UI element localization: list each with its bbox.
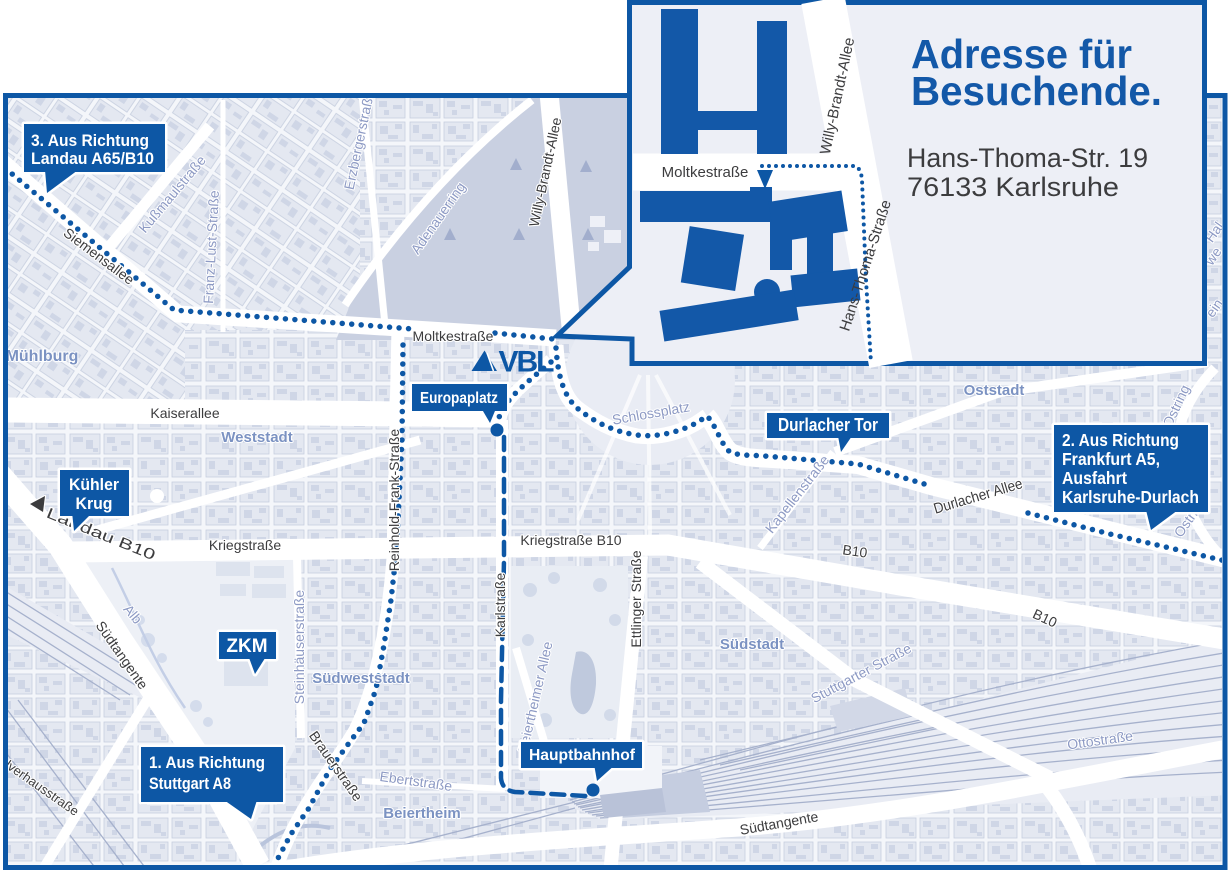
svg-text:Südweststadt: Südweststadt	[312, 670, 410, 687]
svg-text:ZKM: ZKM	[226, 636, 267, 657]
svg-text:Hauptbahnhof: Hauptbahnhof	[529, 747, 636, 764]
svg-text:Südstadt: Südstadt	[720, 636, 784, 653]
svg-text:Krug: Krug	[76, 495, 113, 513]
svg-text:Stuttgart A8: Stuttgart A8	[149, 774, 231, 793]
svg-text:VBL: VBL	[499, 346, 555, 379]
svg-text:Kühler: Kühler	[69, 476, 120, 494]
svg-text:Steinhäuserstraße: Steinhäuserstraße	[291, 590, 307, 705]
svg-text:Durlacher Tor: Durlacher Tor	[778, 415, 878, 435]
svg-text:Karlsruhe-Durlach: Karlsruhe-Durlach	[1062, 487, 1199, 507]
svg-text:Ettlinger Straße: Ettlinger Straße	[628, 550, 644, 647]
svg-text:Karlstraße: Karlstraße	[492, 573, 508, 638]
svg-text:Mühlburg: Mühlburg	[6, 348, 79, 365]
svg-text:Oststadt: Oststadt	[964, 382, 1025, 399]
svg-text:Landau A65/B10: Landau A65/B10	[31, 149, 154, 168]
svg-text:2. Aus Richtung: 2. Aus Richtung	[1062, 430, 1179, 450]
svg-text:Reinhold-Frank-Straße: Reinhold-Frank-Straße	[386, 429, 402, 572]
svg-text:Ausfahrt: Ausfahrt	[1062, 468, 1127, 488]
svg-text:Besuchende.: Besuchende.	[911, 68, 1162, 114]
svg-text:Hans-Thoma-Str. 19: Hans-Thoma-Str. 19	[907, 143, 1148, 173]
svg-text:Beiertheim: Beiertheim	[383, 805, 461, 822]
svg-text:Kriegstraße B10: Kriegstraße B10	[520, 532, 621, 548]
svg-text:Kriegstraße: Kriegstraße	[209, 537, 282, 553]
svg-text:Frankfurt A5,: Frankfurt A5,	[1062, 449, 1160, 469]
svg-text:1. Aus Richtung: 1. Aus Richtung	[149, 753, 265, 772]
svg-text:3. Aus Richtung: 3. Aus Richtung	[31, 131, 149, 150]
svg-text:Kaiserallee: Kaiserallee	[150, 405, 219, 421]
svg-text:Europaplatz: Europaplatz	[420, 390, 498, 407]
svg-text:Weststadt: Weststadt	[221, 429, 292, 446]
svg-text:Moltkestraße: Moltkestraße	[413, 328, 494, 344]
svg-text:76133 Karlsruhe: 76133 Karlsruhe	[907, 172, 1119, 202]
svg-text:Moltkestraße: Moltkestraße	[662, 164, 749, 181]
